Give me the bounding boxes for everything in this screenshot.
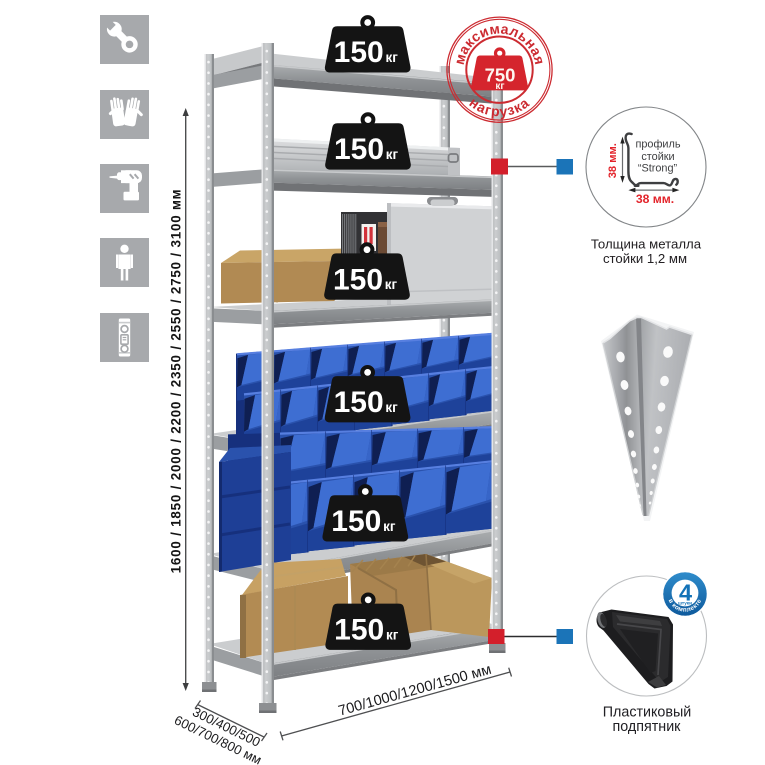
svg-text:38 мм.: 38 мм.	[607, 143, 619, 178]
svg-text:стойки 1,2 мм: стойки 1,2 мм	[603, 251, 687, 266]
svg-text:кг: кг	[495, 81, 504, 92]
svg-text:1600 / 1850 / 2000 / 2200 / 23: 1600 / 1850 / 2000 / 2200 / 2350 / 2550 …	[169, 189, 184, 574]
svg-text:“Strong”: “Strong”	[638, 163, 678, 175]
svg-text:подпятник: подпятник	[613, 719, 682, 735]
svg-text:Толщина металла: Толщина металла	[591, 237, 702, 252]
svg-text:штуки: штуки	[678, 600, 692, 605]
svg-text:профиль: профиль	[635, 138, 680, 150]
svg-text:стойки: стойки	[641, 151, 674, 163]
svg-text:38 мм.: 38 мм.	[636, 192, 674, 206]
